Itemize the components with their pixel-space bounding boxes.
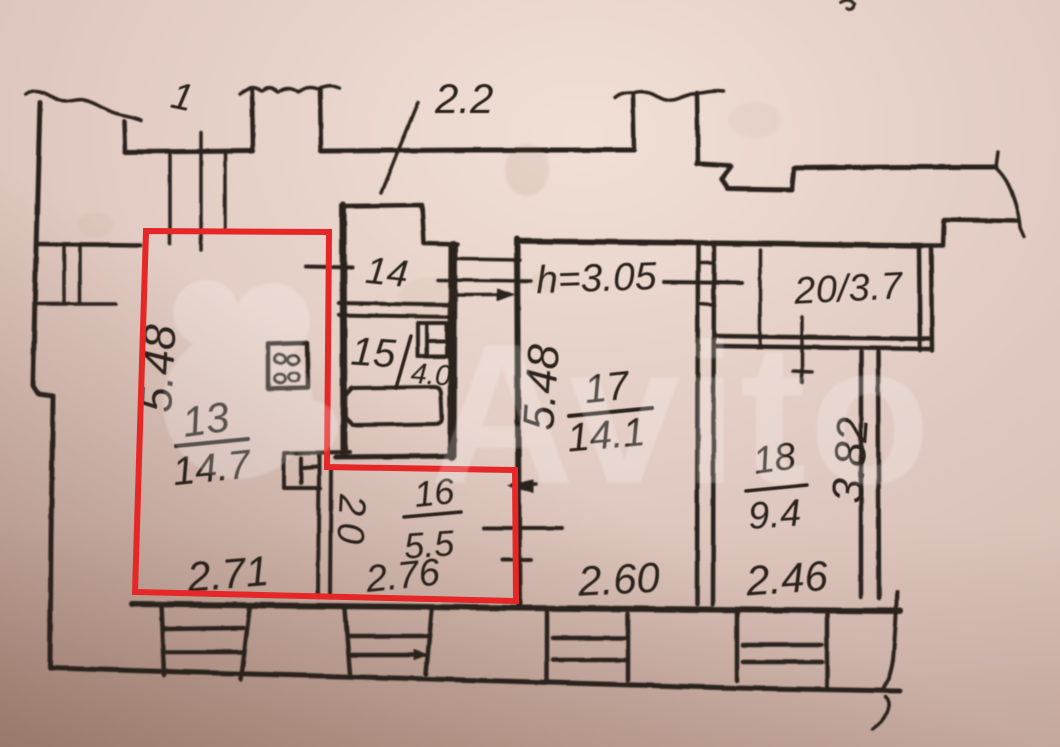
svg-text:2.2: 2.2 bbox=[434, 75, 493, 122]
svg-text:15: 15 bbox=[350, 329, 398, 376]
svg-text:Avito: Avito bbox=[430, 303, 933, 526]
svg-text:20: 20 bbox=[328, 493, 373, 552]
svg-text:2.60: 2.60 bbox=[576, 554, 662, 605]
svg-text:2.46: 2.46 bbox=[743, 552, 829, 605]
svg-text:2.76: 2.76 bbox=[363, 551, 443, 601]
